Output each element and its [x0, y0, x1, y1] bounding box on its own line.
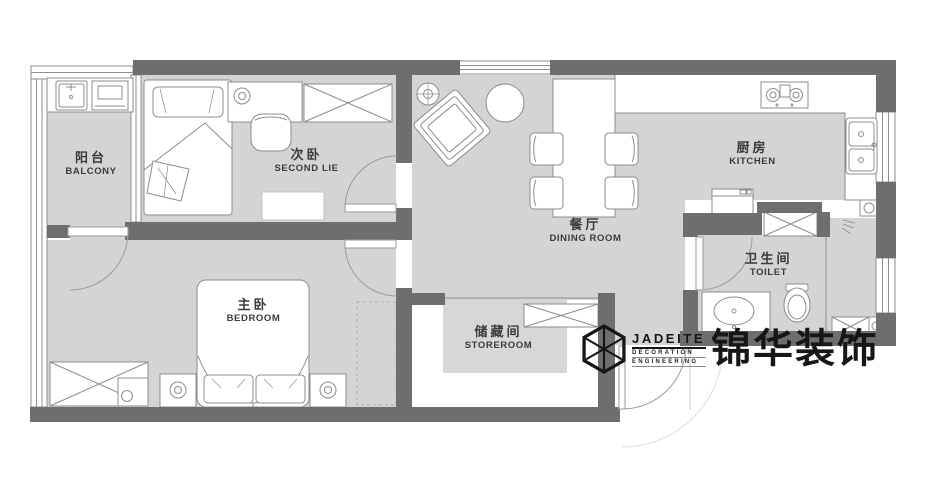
storeroom-label-zh: 储藏间	[436, 324, 561, 340]
wall	[47, 225, 70, 238]
room-label-master-bedroom: 主卧 BEDROOM	[191, 297, 316, 324]
wall	[125, 222, 397, 240]
balcony-label-zh: 阳台	[45, 150, 137, 166]
wall	[133, 60, 460, 75]
wall	[817, 212, 830, 237]
room-label-dining: 餐厅 DINING ROOM	[523, 217, 648, 244]
logo-sub-decoration: DECORATION	[632, 349, 706, 358]
room-label-second-bedroom: 次卧 SECOND LIE	[244, 147, 369, 174]
room-label-toilet: 卫生间 TOILET	[706, 251, 831, 278]
toilet-label-zh: 卫生间	[706, 251, 831, 267]
rug	[262, 192, 324, 220]
room-label-balcony: 阳台 BALCONY	[45, 150, 137, 177]
master-bedroom-label-zh: 主卧	[191, 297, 316, 313]
master-bedroom-label-en: BEDROOM	[191, 313, 316, 324]
wall	[396, 288, 412, 407]
wall	[30, 407, 620, 422]
logo-name: JADEITE	[632, 331, 706, 349]
balcony-counter	[47, 78, 133, 112]
wall	[550, 60, 878, 75]
side-table	[486, 84, 524, 122]
dining-label-en: DINING ROOM	[523, 233, 648, 244]
wall	[876, 182, 896, 258]
logo-wordmark: JADEITE DECORATION ENGINEERING	[632, 331, 706, 367]
wall	[685, 213, 762, 235]
jadeite-cube-icon	[581, 324, 627, 374]
pillow-left	[204, 375, 253, 403]
nightstand-right	[310, 374, 346, 407]
floor-plan-canvas	[0, 0, 940, 482]
wall	[757, 202, 822, 213]
floor-plan-page: 阳台 BALCONY 次卧 SECOND LIE 餐厅 DINING ROOM …	[0, 0, 940, 482]
wall	[396, 208, 412, 240]
logo-sub-engineering: ENGINEERING	[632, 358, 706, 367]
second-bedroom-label-zh: 次卧	[244, 147, 369, 163]
logo-chinese-name: 锦华装饰	[711, 330, 879, 368]
company-logo: JADEITE DECORATION ENGINEERING 锦华装饰	[581, 324, 879, 374]
water-heater	[860, 200, 878, 216]
wall	[412, 293, 445, 305]
dining-label-zh: 餐厅	[523, 217, 648, 233]
left-bay-window	[31, 66, 47, 407]
kitchen-label-en: KITCHEN	[690, 156, 815, 167]
wall	[396, 75, 412, 163]
wall	[876, 60, 896, 112]
second-bedroom-label-en: SECOND LIE	[244, 163, 369, 174]
kitchen-label-zh: 厨房	[690, 140, 815, 156]
storeroom-label-en: STOREROOM	[436, 340, 561, 351]
dining-top-window	[458, 61, 552, 74]
pillow-right	[256, 375, 305, 403]
room-label-kitchen: 厨房 KITCHEN	[690, 140, 815, 167]
balcony-label-en: BALCONY	[45, 166, 137, 177]
shower-floor	[826, 218, 878, 333]
toilet-label-en: TOILET	[706, 267, 831, 278]
right-window-upper	[876, 112, 895, 182]
nightstand-left	[160, 374, 196, 407]
right-window-lower	[876, 258, 895, 313]
room-label-storeroom: 储藏间 STOREROOM	[436, 324, 561, 351]
